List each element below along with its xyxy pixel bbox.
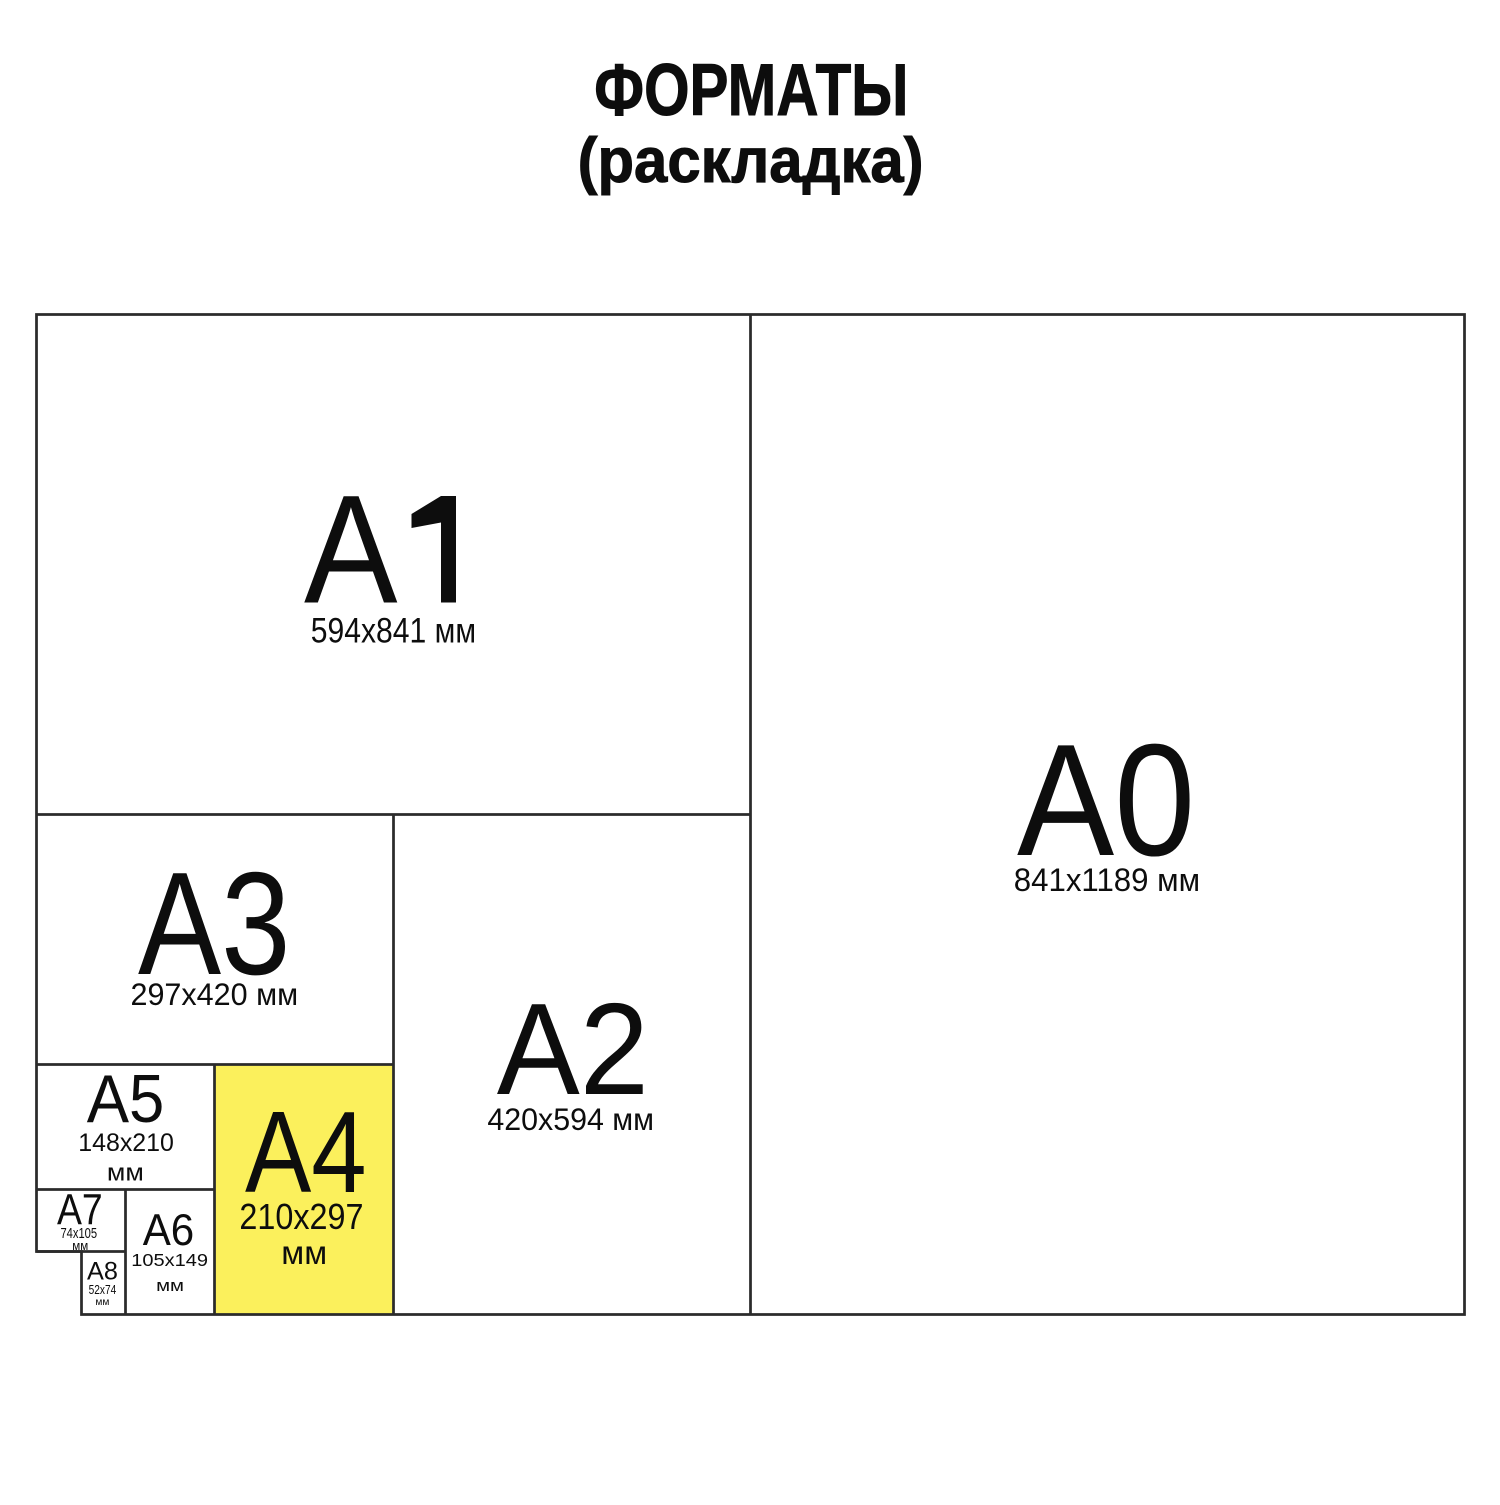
svg-text:105x149: 105x149 <box>131 1250 208 1270</box>
svg-text:ФОРМАТЫ: ФОРМАТЫ <box>594 50 908 131</box>
svg-text:мм: мм <box>156 1276 184 1295</box>
svg-text:A2: A2 <box>497 976 649 1122</box>
svg-text:A: A <box>304 463 398 636</box>
svg-text:148x210: 148x210 <box>78 1130 174 1157</box>
svg-text:210x297: 210x297 <box>239 1197 363 1237</box>
svg-text:52x74: 52x74 <box>89 1282 117 1297</box>
svg-text:420x594 мм: 420x594 мм <box>487 1102 654 1137</box>
svg-text:841x1189 мм: 841x1189 мм <box>1014 861 1200 898</box>
svg-text:A6: A6 <box>143 1206 195 1255</box>
svg-text:A5: A5 <box>87 1061 165 1137</box>
svg-text:мм: мм <box>107 1161 144 1187</box>
svg-text:мм: мм <box>95 1296 109 1308</box>
svg-text:мм: мм <box>72 1238 88 1253</box>
svg-text:(раскладка): (раскладка) <box>578 126 924 196</box>
svg-text:594x841 мм: 594x841 мм <box>311 611 476 650</box>
svg-text:мм: мм <box>281 1234 327 1271</box>
svg-text:297x420 мм: 297x420 мм <box>130 977 298 1012</box>
